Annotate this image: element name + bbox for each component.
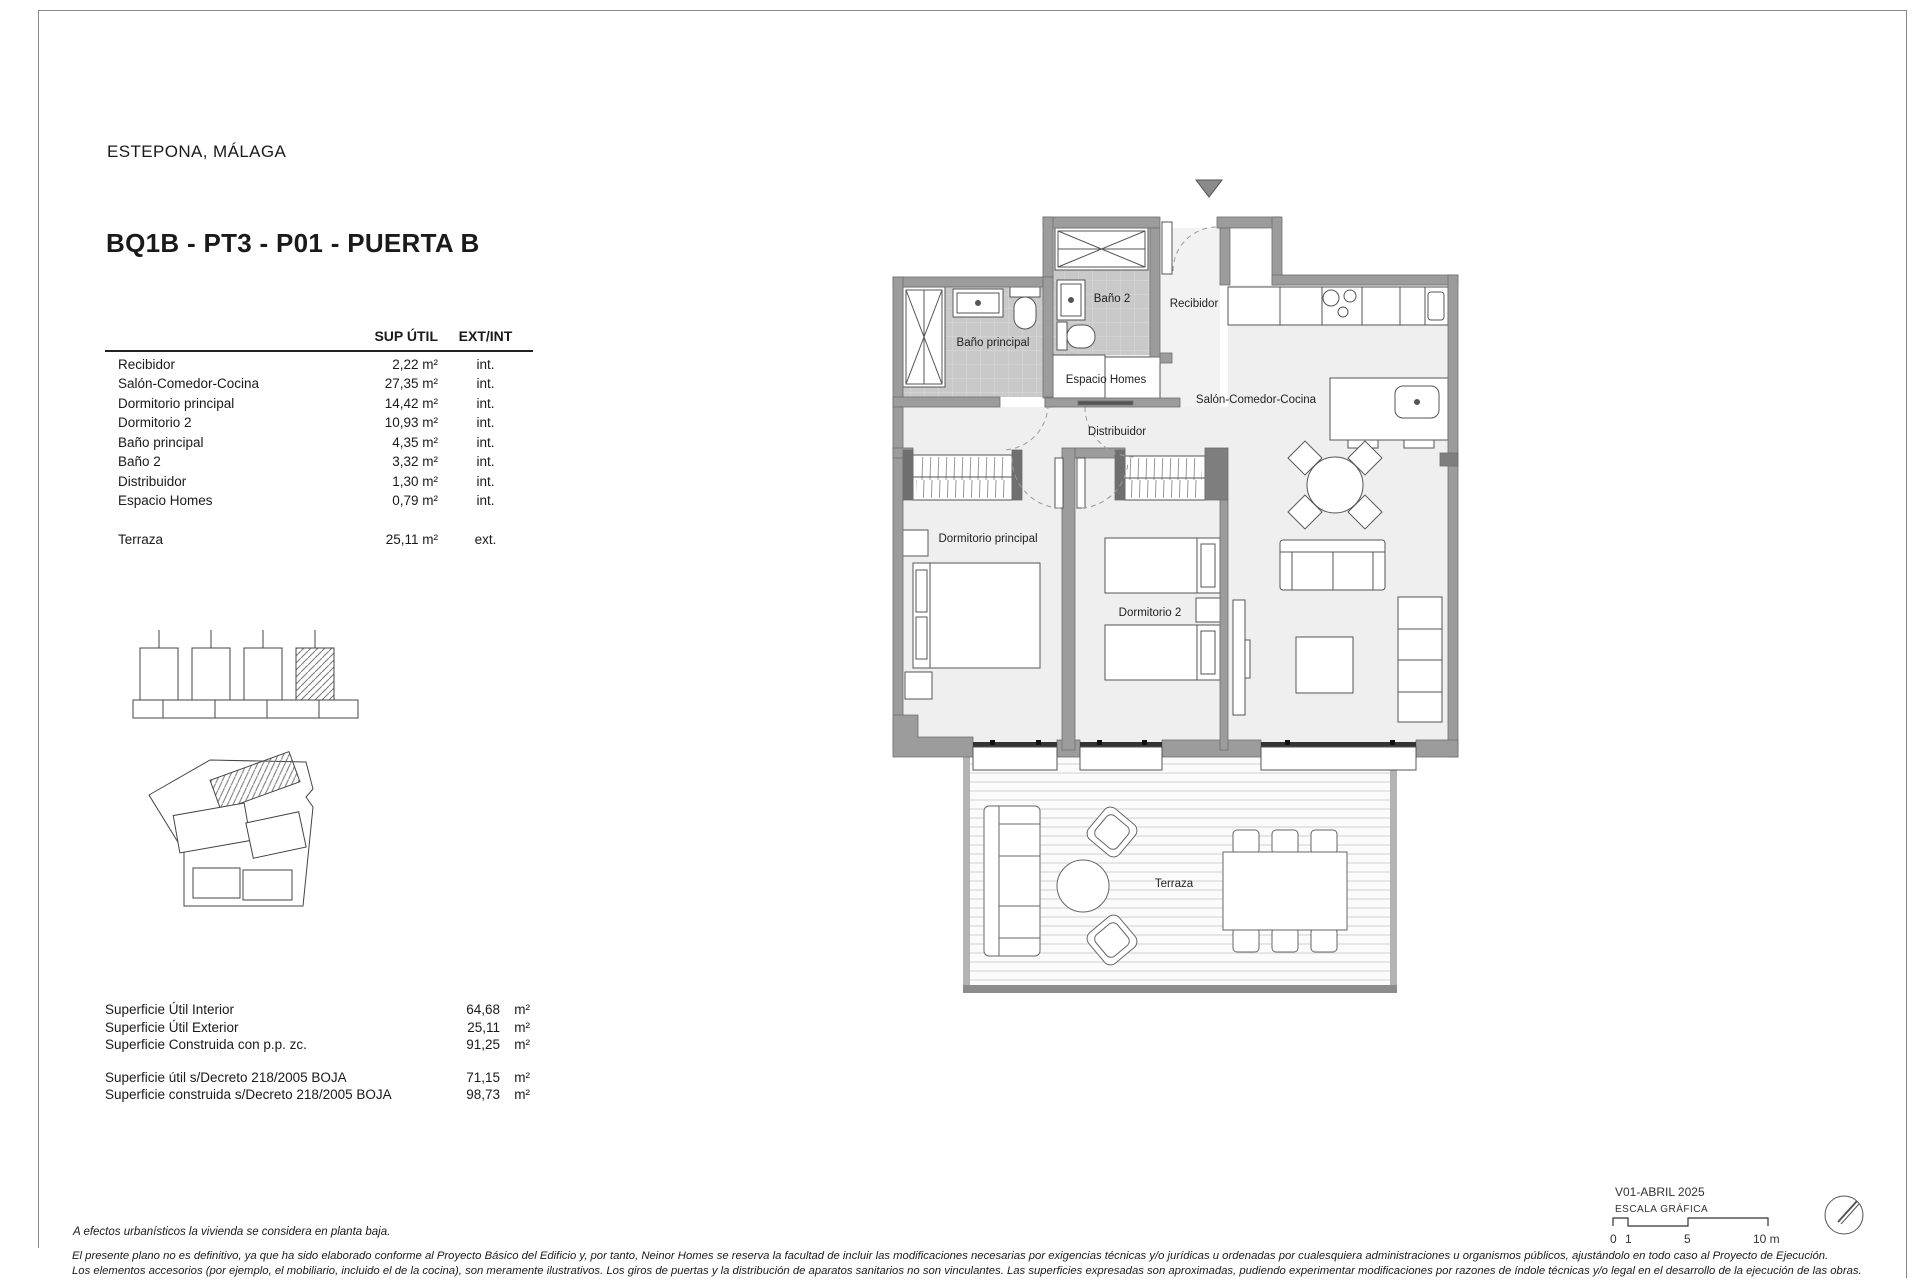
room-label-terraza: Terraza	[1155, 878, 1194, 890]
single-bed-icon	[1105, 538, 1220, 593]
room-label-dormitorio2: Dormitorio 2	[1119, 607, 1182, 619]
bedroom-door-leaf	[1077, 458, 1085, 508]
table-row: Dormitorio principal14,42 m²int.	[105, 394, 533, 414]
kitchen-island	[1330, 378, 1448, 448]
sofa-icon	[1280, 540, 1385, 590]
round-table-icon	[1057, 860, 1109, 912]
scale-tick-10: 10 m	[1753, 1232, 1780, 1246]
room-label-bano2: Baño 2	[1094, 293, 1130, 305]
surface-summary: Superficie Útil Interior64,68m² Superfic…	[105, 1001, 530, 1104]
plan-sheet: ESTEPONA, MÁLAGA BQ1B - PT3 - P01 - PUER…	[0, 0, 1920, 1280]
sink-icon	[953, 289, 1003, 317]
entrance-door-leaf	[1162, 222, 1172, 274]
room-label-salon: Salón-Comedor-Cocina	[1196, 394, 1317, 406]
window	[973, 740, 1057, 770]
room-label-dormitorio-principal: Dormitorio principal	[938, 533, 1037, 545]
outdoor-sofa-icon	[984, 806, 1040, 956]
scale-tick-1: 1	[1625, 1232, 1632, 1246]
location-diagrams	[120, 618, 375, 928]
version-label: V01-ABRIL 2025	[1615, 1185, 1705, 1199]
table-row: Dormitorio 210,93 m²int.	[105, 413, 533, 433]
sink-icon	[1057, 280, 1085, 320]
nightstand-icon	[1196, 598, 1221, 622]
title-block: V01-ABRIL 2025 ESCALA GRÁFICA 0 1 5 10 m	[1600, 1180, 1890, 1255]
areas-table-header: SUP ÚTIL EXT/INT	[105, 327, 533, 352]
sheet-border-right	[1906, 10, 1907, 1278]
shower-icon	[1055, 228, 1148, 270]
room-label-espacio-homes: Espacio Homes	[1066, 374, 1147, 386]
col-sup-util: SUP ÚTIL	[338, 327, 438, 347]
table-row: Distribuidor1,30 m²int.	[105, 472, 533, 492]
disclaimer-line-1: El presente plano no es definitivo, ya q…	[72, 1250, 1902, 1262]
scale-label: ESCALA GRÁFICA	[1615, 1202, 1708, 1215]
site-plan-diagram	[149, 752, 313, 906]
entrance-marker-icon	[1196, 180, 1222, 197]
planta-baja-note: A efectos urbanísticos la vivienda se co…	[73, 1226, 390, 1238]
sliding-door-window	[1261, 740, 1416, 770]
room-label-distribuidor: Distribuidor	[1088, 426, 1146, 438]
room-label-recibidor: Recibidor	[1170, 298, 1219, 310]
building-section-diagram	[133, 630, 358, 718]
toilet-icon	[1057, 322, 1095, 350]
areas-table: SUP ÚTIL EXT/INT Recibidor2,22 m²int. Sa…	[105, 327, 533, 549]
scale-tick-5: 5	[1684, 1232, 1691, 1246]
scale-tick-0: 0	[1610, 1232, 1617, 1246]
coffee-table-icon	[1296, 637, 1353, 693]
wardrobe-icon	[1125, 456, 1205, 500]
shower-icon	[903, 287, 945, 387]
north-compass-icon	[1825, 1196, 1863, 1234]
sideboard-icon	[1398, 597, 1442, 722]
disclaimer-line-2: Los elementos accesorios (por ejemplo, e…	[72, 1265, 1902, 1277]
kitchen-counter	[1228, 287, 1448, 325]
col-ext-int: EXT/INT	[438, 327, 533, 347]
table-row-terraza: Terraza25,11 m²ext.	[105, 530, 533, 550]
location-title: ESTEPONA, MÁLAGA	[107, 142, 286, 162]
floor-plan: Baño principal Baño 2 Recibidor Espacio …	[880, 170, 1480, 1010]
wardrobe-icon	[913, 455, 1012, 500]
table-row: Espacio Homes0,79 m²int.	[105, 491, 533, 511]
bedroom-door-leaf	[1055, 458, 1063, 508]
table-row: Salón-Comedor-Cocina27,35 m²int.	[105, 374, 533, 394]
sheet-border-top	[38, 10, 1907, 11]
table-row: Recibidor2,22 m²int.	[105, 355, 533, 375]
nightstand-icon	[902, 530, 928, 556]
highlighted-unit-section	[296, 648, 334, 700]
outdoor-dining-set-icon	[1223, 830, 1347, 952]
nightstand-icon	[905, 672, 932, 699]
sheet-border-left	[38, 10, 39, 1248]
table-row: Baño 23,32 m²int.	[105, 452, 533, 472]
double-bed-icon	[913, 563, 1040, 668]
window	[1080, 740, 1162, 770]
table-row: Baño principal4,35 m²int.	[105, 433, 533, 453]
single-bed-icon	[1105, 625, 1220, 680]
kitchen-sink-icon	[1428, 292, 1444, 320]
room-label-bano-principal: Baño principal	[957, 337, 1030, 349]
page-title: BQ1B - PT3 - P01 - PUERTA B	[106, 228, 480, 259]
scale-bar	[1613, 1218, 1768, 1226]
toilet-icon	[1010, 287, 1040, 329]
